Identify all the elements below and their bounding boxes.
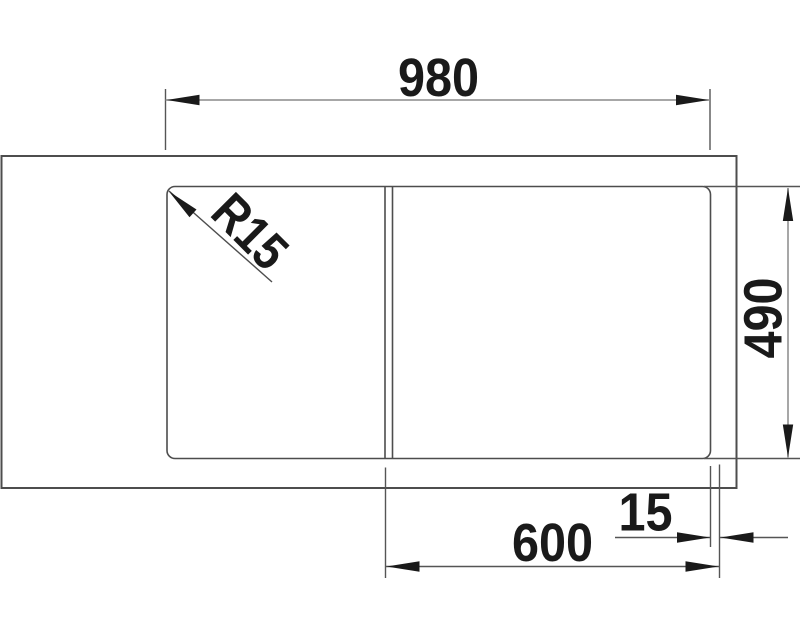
svg-text:15: 15: [618, 481, 672, 542]
svg-text:600: 600: [512, 512, 593, 573]
svg-text:490: 490: [732, 277, 793, 358]
svg-text:980: 980: [398, 47, 479, 108]
